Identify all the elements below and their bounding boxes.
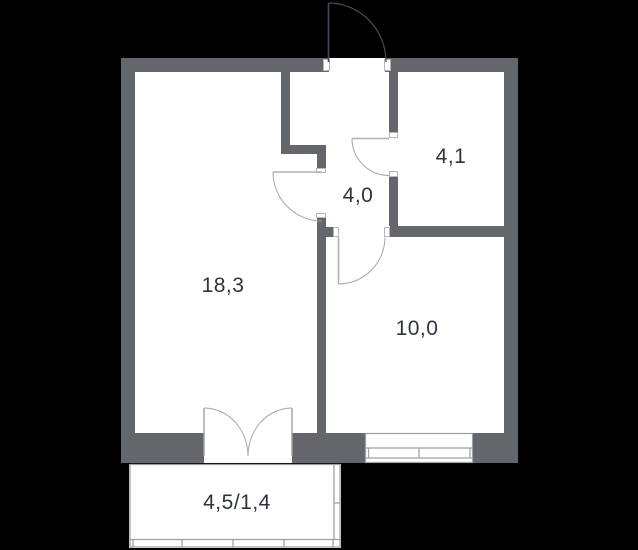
wall-living-bedroom [317, 218, 326, 433]
wall-living-hall-upper [281, 72, 290, 145]
wall-outer-top [121, 58, 518, 72]
bedroom-window-gap [365, 433, 473, 463]
entry-door-swing-icon [329, 3, 387, 62]
room-label-bathroom: 4,1 [436, 145, 467, 169]
wall-outer-left [121, 58, 135, 463]
wall-living-hall-jog [281, 145, 326, 154]
room-label-balcony: 4,5/1,4 [203, 491, 271, 515]
wall-hall-bedroom [390, 226, 504, 237]
room-label-hallway: 4,0 [343, 184, 374, 208]
balcony-door-gap [204, 433, 292, 463]
floor-plan: 18,3 4,0 4,1 10,0 4,5/1,4 [0, 0, 638, 550]
entry-door-opening-gap [329, 58, 385, 72]
wall-bathroom-lower [389, 177, 398, 226]
living-door-jamb-top [316, 168, 326, 173]
bathroom-door-jamb-bottom [389, 171, 398, 177]
entry-door-jamb-right [384, 59, 391, 71]
room-label-living: 18,3 [202, 274, 245, 298]
wall-living-hall-stub [317, 154, 326, 169]
bedroom-door-jamb-left [333, 227, 339, 237]
room-label-bedroom: 10,0 [396, 317, 439, 341]
bathroom-door-jamb-top [389, 132, 398, 138]
bedroom-door-jamb-right [384, 227, 390, 237]
living-door-jamb-bottom [316, 213, 326, 218]
wall-outer-right [504, 58, 518, 463]
wall-bathroom-upper [389, 72, 398, 133]
entry-door-jamb-left [323, 59, 330, 71]
